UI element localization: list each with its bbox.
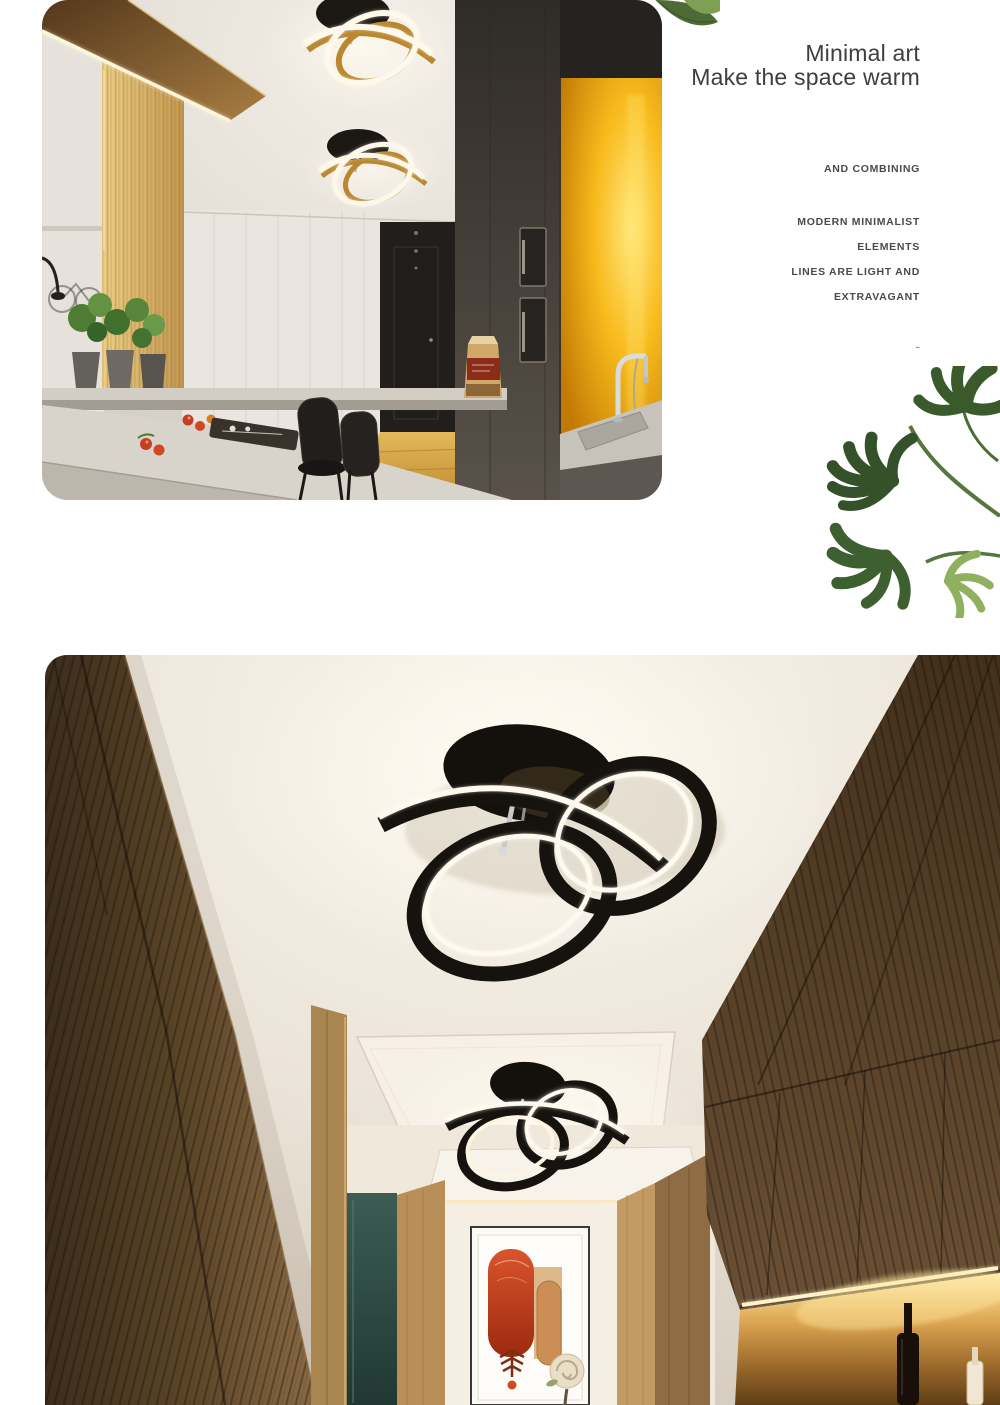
hallway-end xyxy=(325,1125,715,1405)
wood-column xyxy=(617,1183,655,1405)
feature-item: ELEMENTS xyxy=(791,235,920,260)
kitchen-photo-illustration xyxy=(42,0,662,500)
hero-title-line2: Make the space warm xyxy=(691,65,920,89)
feature-item: MODERN MINIMALIST xyxy=(791,210,920,235)
hero-feature-list: MODERN MINIMALIST ELEMENTS LINES ARE LIG… xyxy=(791,210,920,310)
back-counter xyxy=(42,388,507,410)
backlit-yellow-wall xyxy=(560,0,662,500)
hero-dash: - xyxy=(915,338,920,354)
monstera-leaves-icon xyxy=(798,366,1000,618)
kitchen-photo xyxy=(42,0,662,500)
wall-jog-pillar xyxy=(311,1005,347,1405)
hero-title: Minimal art Make the space warm xyxy=(691,41,920,89)
hero-title-line1: Minimal art xyxy=(691,41,920,65)
hallway-photo xyxy=(45,655,1000,1405)
dark-cabinet-column xyxy=(455,0,560,500)
teal-accent-panel xyxy=(347,1193,397,1405)
wood-column xyxy=(655,1153,710,1405)
monstera-leaf xyxy=(830,520,908,612)
hallway-photo-illustration xyxy=(45,655,1000,1405)
monstera-leaf xyxy=(912,366,1000,426)
product-detail-page: Minimal art Make the space warm AND COMB… xyxy=(0,0,1000,1405)
snack-bag xyxy=(464,336,502,398)
feature-item: LINES ARE LIGHT AND xyxy=(791,260,920,285)
monstera-leaf xyxy=(825,423,912,516)
hero-kicker: AND COMBINING xyxy=(824,163,920,175)
feature-item: EXTRAVAGANT xyxy=(791,285,920,310)
monstera-leaf-light xyxy=(944,551,993,618)
wood-trim xyxy=(397,1180,445,1405)
